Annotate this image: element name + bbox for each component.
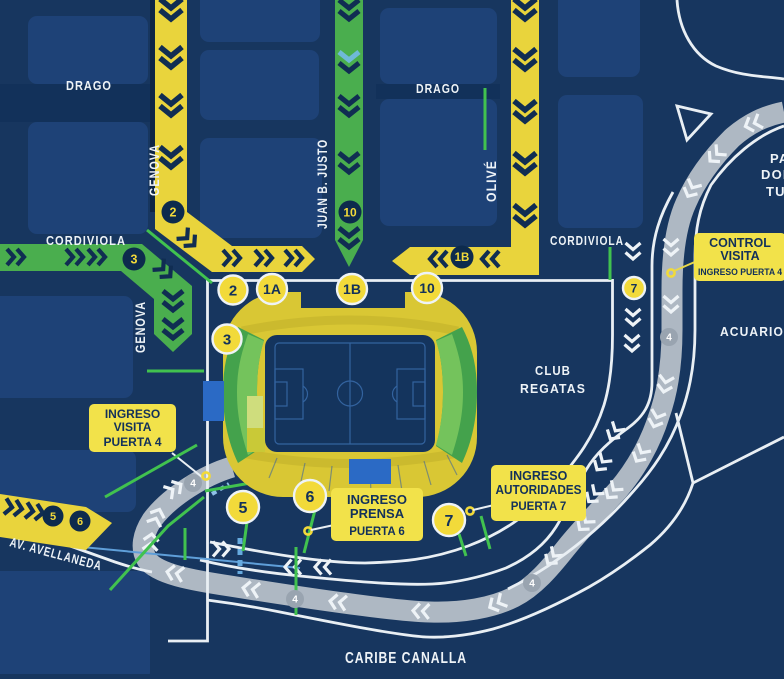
svg-text:TUR: TUR <box>766 184 784 199</box>
svg-text:4: 4 <box>292 595 298 606</box>
svg-text:PUERTA 4: PUERTA 4 <box>103 435 161 449</box>
svg-text:7: 7 <box>445 513 454 530</box>
svg-text:7: 7 <box>631 281 638 295</box>
svg-text:5: 5 <box>239 500 248 517</box>
svg-text:CARIBE CANALLA: CARIBE CANALLA <box>345 650 467 667</box>
svg-text:PRENSA: PRENSA <box>350 506 405 521</box>
svg-text:VISITA: VISITA <box>114 420 152 434</box>
svg-text:4: 4 <box>666 333 672 344</box>
svg-text:10: 10 <box>343 205 357 219</box>
svg-text:DRAGO: DRAGO <box>66 78 112 93</box>
svg-text:5: 5 <box>50 511 56 523</box>
svg-text:OLIVÉ: OLIVÉ <box>484 160 499 202</box>
svg-text:6: 6 <box>306 489 315 506</box>
svg-text:1B: 1B <box>343 281 361 297</box>
svg-text:3: 3 <box>131 253 138 267</box>
svg-text:DON: DON <box>761 167 784 182</box>
svg-text:CORDIVIOLA: CORDIVIOLA <box>46 233 126 248</box>
svg-text:ACUARIO: ACUARIO <box>720 324 784 339</box>
svg-text:2: 2 <box>170 206 177 220</box>
svg-text:PUERTA 7: PUERTA 7 <box>511 501 567 513</box>
svg-text:VISITA: VISITA <box>720 249 759 263</box>
svg-text:PUERTA 6: PUERTA 6 <box>349 526 405 538</box>
svg-text:CORDIVIOLA: CORDIVIOLA <box>550 233 624 248</box>
svg-text:INGRESO: INGRESO <box>510 469 568 483</box>
svg-text:4: 4 <box>190 479 196 490</box>
svg-text:1A: 1A <box>263 281 281 297</box>
svg-text:INGRESO PUERTA 4: INGRESO PUERTA 4 <box>698 267 782 277</box>
svg-text:REGATAS: REGATAS <box>520 381 586 396</box>
svg-text:CLUB: CLUB <box>535 363 571 378</box>
svg-text:4: 4 <box>529 579 535 590</box>
svg-text:GENOVA: GENOVA <box>147 144 162 196</box>
svg-text:PAR: PAR <box>770 151 784 166</box>
svg-text:10: 10 <box>419 280 435 296</box>
svg-text:3: 3 <box>223 331 231 348</box>
svg-text:INGRESO: INGRESO <box>347 492 407 507</box>
svg-text:DRAGO: DRAGO <box>416 81 460 96</box>
svg-text:AUTORIDADES: AUTORIDADES <box>496 483 582 497</box>
svg-text:CONTROL: CONTROL <box>709 236 771 250</box>
svg-text:2: 2 <box>229 282 237 299</box>
svg-text:INGRESO: INGRESO <box>105 407 160 421</box>
svg-text:JUAN B. JUSTO: JUAN B. JUSTO <box>315 139 330 229</box>
svg-text:1B: 1B <box>455 252 470 264</box>
svg-text:6: 6 <box>77 516 83 528</box>
svg-text:GENOVA: GENOVA <box>133 301 148 353</box>
